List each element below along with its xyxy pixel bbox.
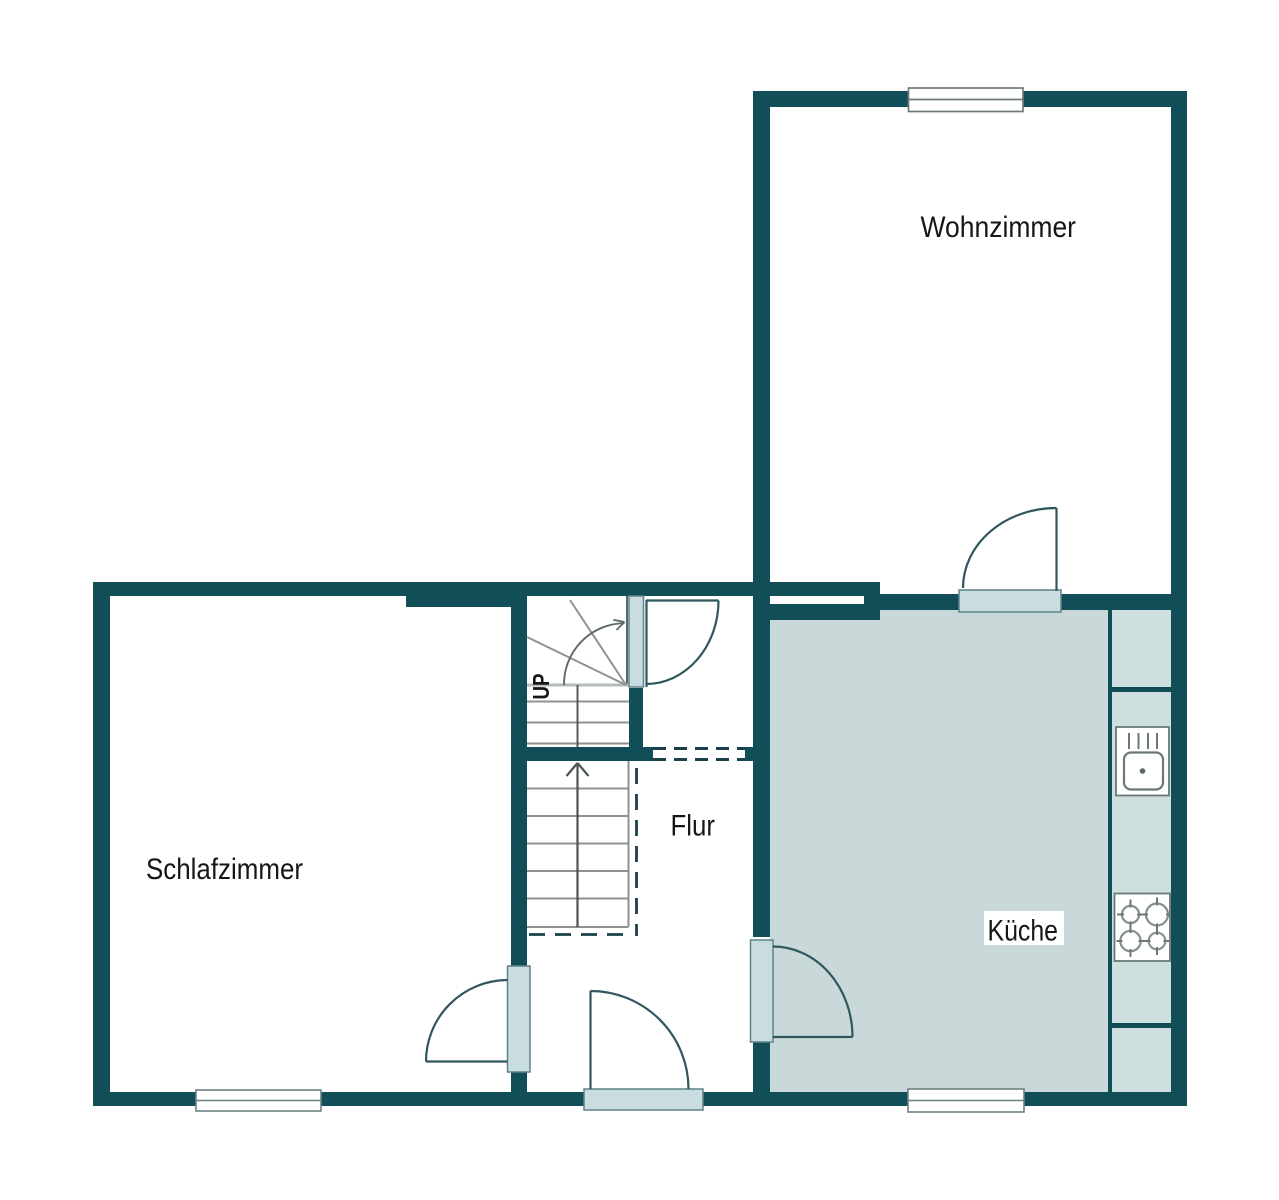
svg-text:Wohnzimmer: Wohnzimmer <box>921 211 1077 244</box>
svg-text:Flur: Flur <box>671 810 716 843</box>
svg-text:UP: UP <box>528 674 554 700</box>
svg-text:Küche: Küche <box>988 915 1059 948</box>
svg-text:Schlafzimmer: Schlafzimmer <box>146 853 303 886</box>
